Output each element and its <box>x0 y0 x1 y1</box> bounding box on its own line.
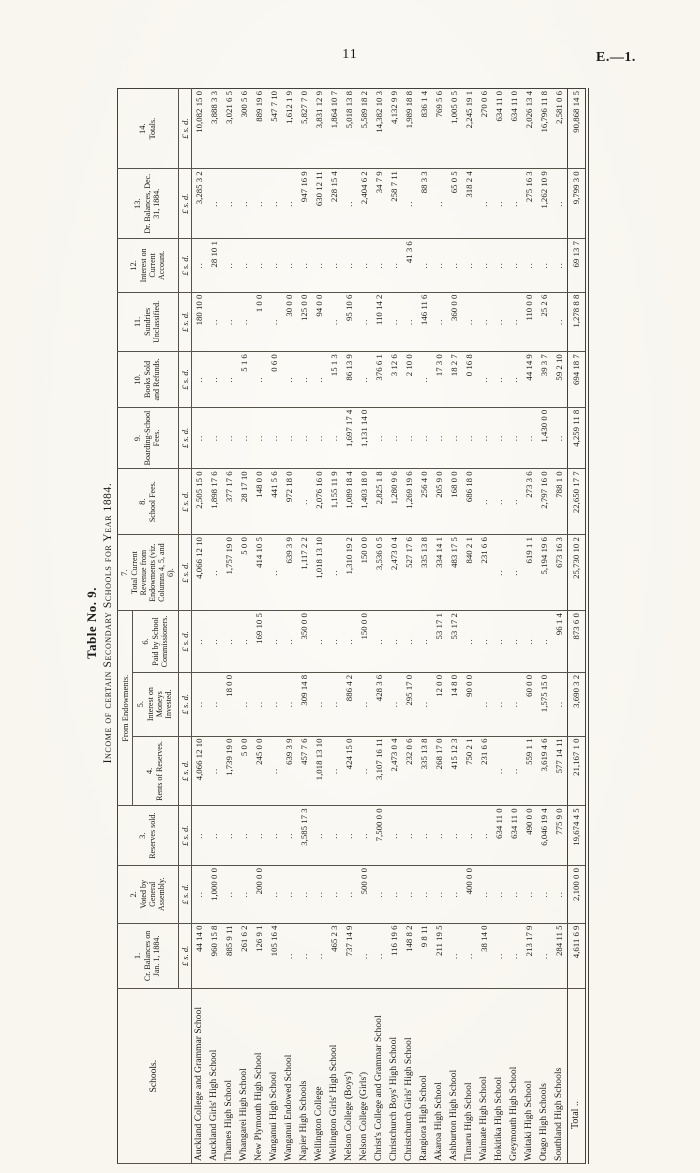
money-cell: 4,066 12 10 <box>191 535 207 611</box>
money-cell: 634 11 0 <box>507 806 522 866</box>
money-cell: 22,650 17 7 <box>567 469 587 535</box>
blank-cell: .. <box>492 352 507 407</box>
school-name: Christ's College and Grammar School <box>372 989 387 1164</box>
blank-cell: .. <box>312 923 327 989</box>
money-cell: 273 3 6 <box>522 469 537 535</box>
money-cell: 86 13 9 <box>342 352 357 407</box>
money-cell: 95 10 6 <box>342 292 357 352</box>
blank-cell: .. <box>507 923 522 989</box>
money-cell: 6,046 19 4 <box>537 806 552 866</box>
blank-cell: .. <box>387 672 402 736</box>
blank-cell: .. <box>522 239 537 292</box>
money-cell: 1,155 11 9 <box>327 469 342 535</box>
money-unit-header: £ s. d. <box>178 535 191 611</box>
money-cell: 0 6 0 <box>267 352 282 407</box>
money-cell: 1,269 19 6 <box>402 469 417 535</box>
blank-cell: .. <box>507 469 522 535</box>
blank-cell: .. <box>492 469 507 535</box>
blank-cell: .. <box>402 611 417 673</box>
money-cell: 1,005 0 5 <box>447 89 462 169</box>
money-cell: 30 0 0 <box>282 292 297 352</box>
blank-cell: .. <box>432 292 447 352</box>
blank-cell: .. <box>552 292 568 352</box>
money-cell: 840 2 1 <box>462 535 477 611</box>
blank-cell: .. <box>282 865 297 923</box>
money-cell: 639 3 9 <box>282 535 297 611</box>
table-header: Schools.1.Cr. Balances on Jan. 1, 1884.2… <box>118 89 192 1164</box>
column-label: Rents of Reserves. <box>156 739 167 804</box>
blank-cell: .. <box>327 611 342 673</box>
blank-cell: .. <box>387 407 402 469</box>
money-cell: 69 13 7 <box>567 239 587 292</box>
blank-cell: .. <box>327 535 342 611</box>
table-row: Otago High Schools....6,046 19 43,619 4 … <box>537 89 552 1164</box>
blank-cell: .. <box>507 169 522 239</box>
money-cell: 2,473 0 4 <box>387 736 402 806</box>
table-row: Wellington Girls' High School465 2 3....… <box>327 89 342 1164</box>
blank-cell: .. <box>191 672 207 736</box>
column-label: Sundries Unclassified. <box>144 295 164 350</box>
money-cell: 1,612 1 9 <box>282 89 297 169</box>
blank-cell: .. <box>552 169 568 239</box>
money-cell: 673 16 3 <box>552 535 568 611</box>
money-unit-header: £ s. d. <box>178 169 191 239</box>
money-cell: 205 9 0 <box>432 469 447 535</box>
column-header-9: 9.Boarding-School Fees. <box>118 407 179 469</box>
money-unit-header: £ s. d. <box>178 865 191 923</box>
school-name: Hokitika High School <box>492 989 507 1164</box>
money-cell: 441 5 6 <box>267 469 282 535</box>
money-cell: 2,076 16 0 <box>312 469 327 535</box>
table-row: Wanganui High School105 16 4............… <box>267 89 282 1164</box>
money-cell: 5,589 18 2 <box>357 89 372 169</box>
blank-cell: .. <box>372 923 387 989</box>
table-row: Ashburton High School......415 12 314 8 … <box>447 89 462 1164</box>
blank-cell: .. <box>327 239 342 292</box>
column-label: Total Current Revenue from Endowments (v… <box>131 537 178 608</box>
table-caption: Table No. 9. Income of certain Secondary… <box>84 82 114 1164</box>
money-cell: 60 0 0 <box>522 672 537 736</box>
blank-cell: .. <box>537 865 552 923</box>
blank-cell: .. <box>537 923 552 989</box>
blank-cell: .. <box>267 292 282 352</box>
money-cell: 25,730 10 2 <box>567 535 587 611</box>
blank-cell: .. <box>387 806 402 866</box>
money-cell: 0 16 8 <box>462 352 477 407</box>
money-unit-header: £ s. d. <box>178 469 191 535</box>
money-cell: 1,278 8 8 <box>567 292 587 352</box>
blank-cell: .. <box>342 239 357 292</box>
blank-cell: .. <box>327 672 342 736</box>
money-cell: 148 8 2 <box>402 923 417 989</box>
money-cell: 284 11 5 <box>552 923 568 989</box>
blank-cell: .. <box>267 806 282 866</box>
column-number: 8. <box>137 471 147 532</box>
blank-cell: .. <box>357 806 372 866</box>
blank-cell: .. <box>297 407 312 469</box>
school-name: Wanganui Endowed School <box>282 989 297 1164</box>
blank-cell: .. <box>417 611 432 673</box>
table-row: Greymouth High School....634 11 0.......… <box>507 89 522 1164</box>
table-row: Waitaki High School213 17 9..490 0 0559 … <box>522 89 537 1164</box>
blank-cell: .. <box>492 169 507 239</box>
money-cell: 886 4 2 <box>342 672 357 736</box>
blank-cell: .. <box>297 469 312 535</box>
scanned-page: 11 E.—1. Table No. 9. Income of certain … <box>0 0 700 1173</box>
money-cell: 3,585 17 3 <box>297 806 312 866</box>
money-cell: 1,757 19 0 <box>222 535 237 611</box>
blank-cell: .. <box>312 865 327 923</box>
column-header-8: 8.School Fees. <box>118 469 179 535</box>
blank-cell: .. <box>522 611 537 673</box>
money-cell: 41 3 6 <box>402 239 417 292</box>
column-label: Totals. <box>149 91 160 166</box>
money-cell: 180 10 0 <box>191 292 207 352</box>
column-header-3: 3.Reserves sold. <box>118 806 179 866</box>
blank-cell: .. <box>462 611 477 673</box>
column-number: 5. <box>135 675 145 734</box>
blank-cell: .. <box>252 407 267 469</box>
blank-cell: .. <box>312 352 327 407</box>
school-name: Christchurch Girls' High School <box>402 989 417 1164</box>
money-cell: 5,827 7 0 <box>297 89 312 169</box>
money-cell: 1,131 14 0 <box>357 407 372 469</box>
money-cell: 483 17 5 <box>447 535 462 611</box>
money-cell: 213 17 9 <box>522 923 537 989</box>
money-cell: 126 9 1 <box>252 923 267 989</box>
blank-cell: .. <box>207 736 222 806</box>
money-unit-header: £ s. d. <box>178 923 191 989</box>
table-row: Nelson College (Girls')..500 0 0......15… <box>357 89 372 1164</box>
blank-cell: .. <box>387 292 402 352</box>
money-cell: 2,505 15 0 <box>191 469 207 535</box>
money-cell: 88 3 3 <box>417 169 432 239</box>
money-cell: 256 4 0 <box>417 469 432 535</box>
rotated-table-area: Table No. 9. Income of certain Secondary… <box>84 82 662 1164</box>
blank-cell: .. <box>477 292 492 352</box>
money-cell: 547 7 10 <box>267 89 282 169</box>
blank-cell: .. <box>402 865 417 923</box>
blank-cell: .. <box>282 239 297 292</box>
column-number: 12. <box>128 241 138 289</box>
blank-cell: .. <box>267 611 282 673</box>
school-name: Christchurch Boys' High School <box>387 989 402 1164</box>
money-cell: 110 14 2 <box>372 292 387 352</box>
blank-cell: .. <box>282 407 297 469</box>
money-cell: 96 1 4 <box>552 611 568 673</box>
money-cell: 34 7 9 <box>372 169 387 239</box>
blank-cell: .. <box>237 407 252 469</box>
school-name: Southland High Schools <box>552 989 568 1164</box>
money-cell: 3 12 6 <box>387 352 402 407</box>
school-name: Akaroa High School <box>432 989 447 1164</box>
blank-cell: .. <box>191 611 207 673</box>
blank-cell: .. <box>282 169 297 239</box>
table-title: Income of certain Secondary Schools for … <box>102 82 114 1164</box>
money-cell: 150 0 0 <box>357 611 372 673</box>
money-cell: 1,864 10 7 <box>327 89 342 169</box>
money-cell: 500 0 0 <box>357 865 372 923</box>
blank-cell: .. <box>507 865 522 923</box>
blank-cell: .. <box>417 672 432 736</box>
blank-cell: .. <box>267 672 282 736</box>
blank-cell: .. <box>507 672 522 736</box>
blank-cell: .. <box>552 239 568 292</box>
blank-cell: .. <box>402 407 417 469</box>
blank-cell: .. <box>282 352 297 407</box>
money-cell: 2,797 16 0 <box>537 469 552 535</box>
money-cell: 15 1 3 <box>327 352 342 407</box>
money-cell: 836 1 4 <box>417 89 432 169</box>
money-cell: 168 0 0 <box>447 469 462 535</box>
column-number: 13. <box>132 171 142 236</box>
money-cell: 634 11 0 <box>507 89 522 169</box>
money-unit-header: £ s. d. <box>178 407 191 469</box>
money-cell: 1,000 0 0 <box>207 865 222 923</box>
blank-cell: .. <box>207 292 222 352</box>
money-cell: 169 10 5 <box>252 611 267 673</box>
blank-cell: .. <box>552 865 568 923</box>
blank-cell: .. <box>222 239 237 292</box>
money-cell: 428 3 6 <box>372 672 387 736</box>
table-row: Wanganui Endowed School......639 3 9....… <box>282 89 297 1164</box>
money-cell: 5 0 0 <box>237 535 252 611</box>
column-label: Interest on Current Account. <box>140 241 169 289</box>
column-header-5: 5.Interest on Moneys Invested. <box>133 672 179 736</box>
blank-cell: .. <box>282 806 297 866</box>
blank-cell: .. <box>237 672 252 736</box>
money-cell: 21,167 1 0 <box>567 736 587 806</box>
money-unit-header: £ s. d. <box>178 736 191 806</box>
money-cell: 105 16 4 <box>267 923 282 989</box>
table-row: Hokitika High School....634 11 0........… <box>492 89 507 1164</box>
column-number: 7. <box>119 537 129 608</box>
money-unit-header: £ s. d. <box>178 611 191 673</box>
school-name: Wanganui High School <box>267 989 282 1164</box>
column-number: 14. <box>137 91 147 166</box>
money-cell: 788 1 0 <box>552 469 568 535</box>
blank-cell: .. <box>492 407 507 469</box>
money-cell: 125 0 0 <box>297 292 312 352</box>
money-cell: 3,536 0 5 <box>372 535 387 611</box>
money-cell: 2,825 1 8 <box>372 469 387 535</box>
money-cell: 232 0 6 <box>402 736 417 806</box>
blank-cell: .. <box>207 611 222 673</box>
blank-cell: .. <box>327 736 342 806</box>
money-cell: 309 14 8 <box>297 672 312 736</box>
money-cell: 261 6 2 <box>237 923 252 989</box>
blank-cell: .. <box>477 239 492 292</box>
blank-cell: .. <box>267 169 282 239</box>
money-cell: 775 9 0 <box>552 806 568 866</box>
blank-cell: .. <box>477 169 492 239</box>
table-row: Wellington College......1,018 13 10....1… <box>312 89 327 1164</box>
money-cell: 972 18 0 <box>282 469 297 535</box>
table-row: Christchurch Boys' High School116 19 6..… <box>387 89 402 1164</box>
money-cell: 360 0 0 <box>447 292 462 352</box>
blank-cell: .. <box>462 292 477 352</box>
blank-cell: .. <box>357 923 372 989</box>
money-unit-header: £ s. d. <box>178 239 191 292</box>
blank-cell: .. <box>207 535 222 611</box>
money-cell: 7,500 0 0 <box>372 806 387 866</box>
blank-cell: .. <box>552 672 568 736</box>
document-reference: E.—1. <box>596 50 636 66</box>
money-cell: 415 12 3 <box>447 736 462 806</box>
blank-cell: .. <box>342 169 357 239</box>
blank-cell: .. <box>297 239 312 292</box>
blank-cell: .. <box>492 923 507 989</box>
blank-cell: .. <box>252 239 267 292</box>
money-cell: 1,430 0 0 <box>537 407 552 469</box>
money-cell: 1,697 17 4 <box>342 407 357 469</box>
blank-cell: .. <box>537 611 552 673</box>
income-table: Schools.1.Cr. Balances on Jan. 1, 1884.2… <box>117 88 589 1164</box>
column-label: Cr. Balances on Jan. 1, 1884. <box>144 926 164 987</box>
school-name: Greymouth High School <box>507 989 522 1164</box>
school-name: Nelson College (Girls') <box>357 989 372 1164</box>
column-header-12: 12.Interest on Current Account. <box>118 239 179 292</box>
blank-cell: .. <box>492 736 507 806</box>
money-cell: 5 1 6 <box>237 352 252 407</box>
blank-cell: .. <box>507 292 522 352</box>
blank-cell: .. <box>492 672 507 736</box>
blank-cell: .. <box>477 865 492 923</box>
money-cell: 300 5 6 <box>237 89 252 169</box>
school-name: Timaru High School <box>462 989 477 1164</box>
blank-cell: .. <box>282 611 297 673</box>
column-header-10: 10.Books Sold and Refunds. <box>118 352 179 407</box>
blank-cell: .. <box>492 865 507 923</box>
blank-cell: .. <box>222 169 237 239</box>
school-name: Thames High School <box>222 989 237 1164</box>
blank-cell: .. <box>222 865 237 923</box>
money-unit-header: £ s. d. <box>178 292 191 352</box>
money-cell: 1,117 2 2 <box>297 535 312 611</box>
column-header-4: 4.Rents of Reserves. <box>133 736 179 806</box>
blank-cell: .. <box>432 169 447 239</box>
money-cell: 634 11 0 <box>492 89 507 169</box>
money-cell: 231 6 6 <box>477 535 492 611</box>
money-cell: 465 2 3 <box>327 923 342 989</box>
blank-cell: .. <box>191 407 207 469</box>
money-cell: 947 16 9 <box>297 169 312 239</box>
money-cell: 3,690 3 2 <box>567 672 587 736</box>
money-cell: 5 0 0 <box>237 736 252 806</box>
blank-cell: .. <box>402 169 417 239</box>
blank-cell: .. <box>342 611 357 673</box>
school-name: Whangarei High School <box>237 989 252 1164</box>
money-cell: 686 18 0 <box>462 469 477 535</box>
blank-cell: .. <box>312 407 327 469</box>
group-header-endowments: From Endowments. <box>118 611 133 806</box>
school-name: Wellington College <box>312 989 327 1164</box>
school-name: Auckland College and Grammar School <box>191 989 207 1164</box>
money-cell: 18 0 0 <box>222 672 237 736</box>
money-cell: 275 16 3 <box>522 169 537 239</box>
blank-cell: .. <box>267 865 282 923</box>
blank-cell: .. <box>267 407 282 469</box>
school-name: Napier High Schools <box>297 989 312 1164</box>
money-cell: 14,382 10 3 <box>372 89 387 169</box>
blank-cell: .. <box>492 239 507 292</box>
money-cell: 694 18 7 <box>567 352 587 407</box>
blank-cell: .. <box>297 923 312 989</box>
blank-cell: .. <box>477 407 492 469</box>
money-cell: 1,898 17 6 <box>207 469 222 535</box>
column-label: Interest on Moneys Invested. <box>147 675 176 734</box>
money-cell: 4,259 11 8 <box>567 407 587 469</box>
money-cell: 2,473 0 4 <box>387 535 402 611</box>
school-name: Otago High Schools <box>537 989 552 1164</box>
blank-cell: .. <box>252 352 267 407</box>
blank-cell: .. <box>327 407 342 469</box>
blank-cell: .. <box>191 352 207 407</box>
school-name: Auckland Girls' High School <box>207 989 222 1164</box>
blank-cell: .. <box>492 611 507 673</box>
money-cell: 2,581 0 6 <box>552 89 568 169</box>
column-header-7: 7.Total Current Revenue from Endowments … <box>118 535 179 611</box>
blank-cell: .. <box>447 239 462 292</box>
blank-cell: .. <box>252 672 267 736</box>
money-cell: 65 0 5 <box>447 169 462 239</box>
money-cell: 90,868 14 5 <box>567 89 587 169</box>
blank-cell: .. <box>207 352 222 407</box>
blank-cell: .. <box>402 292 417 352</box>
money-cell: 639 3 9 <box>282 736 297 806</box>
money-cell: 53 17 1 <box>432 611 447 673</box>
blank-cell: .. <box>522 407 537 469</box>
money-cell: 400 0 0 <box>462 865 477 923</box>
blank-cell: .. <box>552 407 568 469</box>
table-row: Timaru High School..400 0 0..750 2 190 0… <box>462 89 477 1164</box>
school-name: Wellington Girls' High School <box>327 989 342 1164</box>
money-cell: 3,831 12 9 <box>312 89 327 169</box>
blank-cell: .. <box>237 292 252 352</box>
column-label: Voted by General Assembly. <box>140 868 169 921</box>
money-unit-header: £ s. d. <box>178 352 191 407</box>
blank-cell: .. <box>507 736 522 806</box>
money-cell: 960 15 8 <box>207 923 222 989</box>
table-row: Christ's College and Grammar School....7… <box>372 89 387 1164</box>
money-cell: 146 11 6 <box>417 292 432 352</box>
money-cell: 1,575 15 0 <box>537 672 552 736</box>
blank-cell: .. <box>462 806 477 866</box>
money-cell: 17 3 0 <box>432 352 447 407</box>
money-cell: 228 15 4 <box>327 169 342 239</box>
table-row: Akaroa High School211 19 5....268 17 012… <box>432 89 447 1164</box>
column-header-6: 6.Paid by School Commissioners. <box>133 611 179 673</box>
column-label: Dr. Balances, Dec. 31, 1884. <box>144 171 164 236</box>
column-number: 2. <box>128 868 138 921</box>
blank-cell: .. <box>312 806 327 866</box>
blank-cell: .. <box>372 407 387 469</box>
blank-cell: .. <box>357 736 372 806</box>
table-row: Napier High Schools....3,585 17 3457 7 6… <box>297 89 312 1164</box>
money-cell: 2,245 19 1 <box>462 89 477 169</box>
blank-cell: .. <box>417 806 432 866</box>
blank-cell: .. <box>357 292 372 352</box>
money-cell: 59 2 10 <box>552 352 568 407</box>
blank-cell: .. <box>507 239 522 292</box>
blank-cell: .. <box>522 865 537 923</box>
blank-cell: .. <box>447 865 462 923</box>
money-cell: 4,132 9 9 <box>387 89 402 169</box>
money-cell: 90 0 0 <box>462 672 477 736</box>
blank-cell: .. <box>222 352 237 407</box>
blank-cell: .. <box>477 611 492 673</box>
column-header-14: 14.Totals. <box>118 89 179 169</box>
